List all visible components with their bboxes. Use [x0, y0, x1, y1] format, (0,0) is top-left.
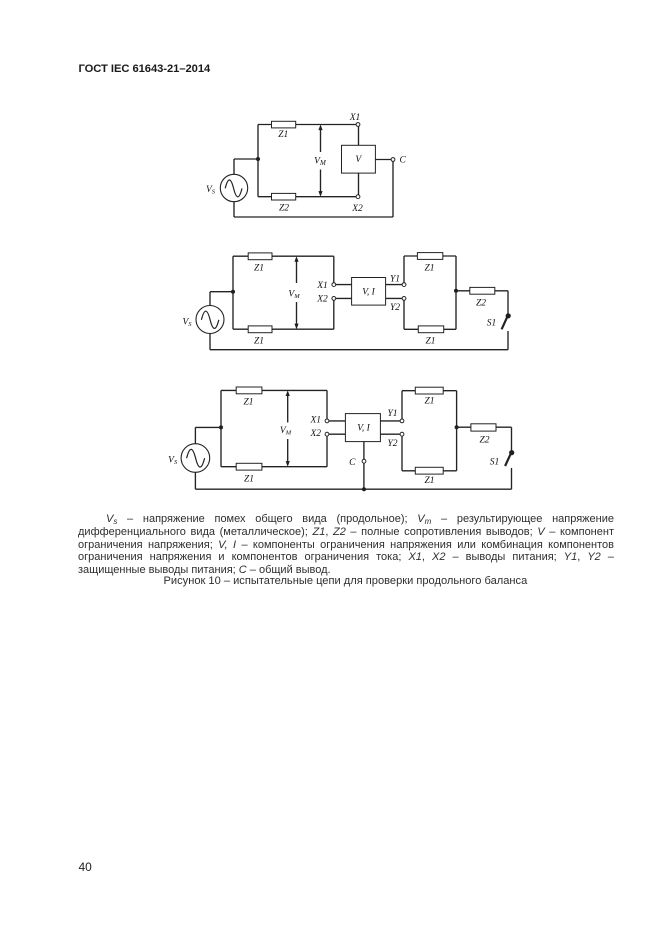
svg-text:X2: X2 [316, 295, 328, 305]
svg-text:Z1: Z1 [278, 130, 288, 140]
svg-text:Z1: Z1 [243, 398, 253, 408]
svg-text:VS: VS [168, 456, 178, 467]
svg-text:V, I: V, I [362, 287, 375, 297]
svg-text:Z1: Z1 [425, 337, 435, 347]
svg-text:Z1: Z1 [244, 475, 254, 485]
svg-text:Y2: Y2 [387, 439, 397, 449]
svg-text:Z2: Z2 [479, 436, 489, 446]
svg-text:Z2: Z2 [279, 204, 289, 214]
svg-text:VM: VM [280, 426, 292, 437]
svg-text:C: C [349, 458, 356, 468]
svg-text:Y2: Y2 [390, 303, 400, 313]
svg-text:X2: X2 [309, 429, 321, 439]
svg-text:X2: X2 [351, 204, 363, 214]
svg-text:V, I: V, I [357, 423, 370, 433]
svg-text:Z1: Z1 [424, 476, 434, 486]
svg-text:C: C [400, 156, 407, 166]
svg-text:VM: VM [288, 290, 300, 301]
svg-text:Y1: Y1 [390, 274, 400, 284]
svg-text:Z1: Z1 [254, 337, 264, 347]
svg-text:X1: X1 [316, 281, 328, 291]
svg-text:VM: VM [314, 156, 327, 167]
svg-text:Z2: Z2 [476, 299, 486, 309]
svg-text:Z1: Z1 [424, 264, 434, 274]
svg-text:VS: VS [182, 318, 192, 329]
svg-text:X1: X1 [309, 416, 321, 426]
svg-text:Z1: Z1 [254, 264, 264, 274]
svg-text:Y1: Y1 [387, 409, 397, 419]
svg-text:S1: S1 [490, 457, 500, 467]
svg-text:Z1: Z1 [424, 397, 434, 407]
svg-text:X1: X1 [349, 113, 361, 123]
svg-text:VS: VS [206, 185, 216, 196]
svg-text:S1: S1 [487, 318, 497, 328]
